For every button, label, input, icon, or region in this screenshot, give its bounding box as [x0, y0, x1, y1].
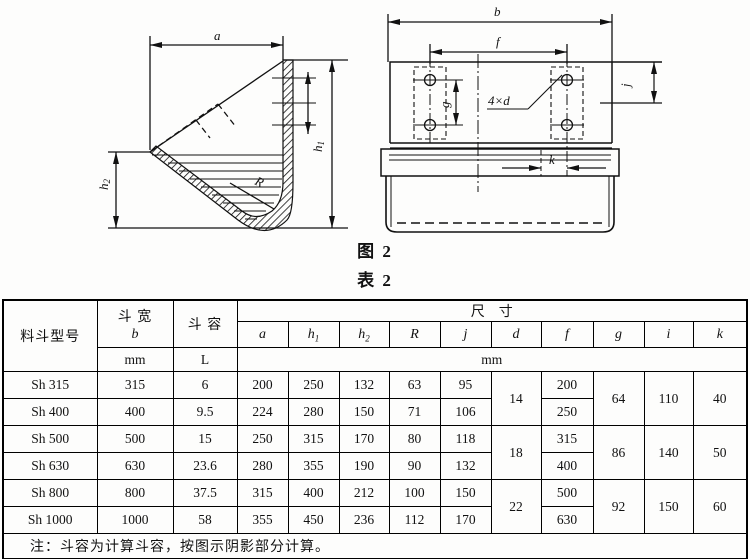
unit-width: mm	[97, 348, 173, 372]
table-row: Sh 500 500 15 250 315 170 80 118 18 315 …	[3, 426, 747, 453]
cell-f: 250	[541, 399, 593, 426]
cell-a: 250	[237, 426, 288, 453]
cell-k: 40	[693, 372, 747, 426]
dim-label-j: j	[618, 83, 633, 89]
header-sym-h1: h1	[288, 322, 339, 348]
cell-vol: 23.6	[173, 453, 237, 480]
header-sym-k: k	[693, 322, 747, 348]
cell-R: 100	[389, 480, 440, 507]
cell-h1: 450	[288, 507, 339, 534]
header-sym-i: i	[644, 322, 693, 348]
cell-a: 200	[237, 372, 288, 399]
cell-h1: 355	[288, 453, 339, 480]
cell-R: 112	[389, 507, 440, 534]
cell-j: 170	[440, 507, 491, 534]
cell-j: 132	[440, 453, 491, 480]
bucket-body	[386, 176, 614, 232]
cell-f: 200	[541, 372, 593, 399]
unit-volume: L	[173, 348, 237, 372]
left-view-drawing	[108, 36, 348, 231]
cell-h2: 150	[339, 399, 389, 426]
right-view-drawing	[381, 14, 662, 232]
header-sym-d: d	[491, 322, 541, 348]
cell-g: 86	[593, 426, 644, 480]
cell-h1: 400	[288, 480, 339, 507]
cell-g: 92	[593, 480, 644, 534]
cell-R: 71	[389, 399, 440, 426]
cell-j: 118	[440, 426, 491, 453]
hole-centermarks	[413, 54, 584, 192]
table-row: Sh 315 315 6 200 250 132 63 95 14 200 64…	[3, 372, 747, 399]
cell-i: 140	[644, 426, 693, 480]
cell-h1: 280	[288, 399, 339, 426]
cell-vol: 15	[173, 426, 237, 453]
cell-R: 90	[389, 453, 440, 480]
header-sym-h2: h2	[339, 322, 389, 348]
header-sym-R: R	[389, 322, 440, 348]
unit-dims: mm	[237, 348, 747, 372]
cell-d: 18	[491, 426, 541, 480]
cell-h2: 236	[339, 507, 389, 534]
cell-h1: 315	[288, 426, 339, 453]
cell-a: 280	[237, 453, 288, 480]
table-row: Sh 800 800 37.5 315 400 212 100 150 22 5…	[3, 480, 747, 507]
cell-model: Sh 400	[3, 399, 97, 426]
cell-k: 60	[693, 480, 747, 534]
cell-vol: 9.5	[173, 399, 237, 426]
cell-i: 150	[644, 480, 693, 534]
cell-a: 355	[237, 507, 288, 534]
cell-h2: 190	[339, 453, 389, 480]
table-caption: 表 2	[0, 266, 750, 291]
dim-label-h1: h1	[310, 141, 326, 152]
cell-f: 630	[541, 507, 593, 534]
cell-d: 22	[491, 480, 541, 534]
header-width: 斗 宽 b	[97, 300, 173, 348]
cell-vol: 58	[173, 507, 237, 534]
figure-caption: 图 2	[0, 237, 750, 262]
document-page: a h1 h2 R	[0, 0, 750, 559]
cell-a: 315	[237, 480, 288, 507]
cell-i: 110	[644, 372, 693, 426]
dim-label-f: f	[496, 34, 502, 49]
cell-R: 63	[389, 372, 440, 399]
cell-h2: 132	[339, 372, 389, 399]
cell-f: 400	[541, 453, 593, 480]
cell-j: 95	[440, 372, 491, 399]
cell-f: 500	[541, 480, 593, 507]
cell-model: Sh 315	[3, 372, 97, 399]
cell-model: Sh 500	[3, 426, 97, 453]
header-model: 料斗型号	[3, 300, 97, 372]
cell-h2: 170	[339, 426, 389, 453]
cell-a: 224	[237, 399, 288, 426]
dim-label-k: k	[549, 152, 555, 167]
header-sym-j: j	[440, 322, 491, 348]
cell-model: Sh 800	[3, 480, 97, 507]
dim-label-a: a	[214, 28, 221, 43]
rim-band	[381, 149, 619, 176]
header-dims: 尺寸	[237, 300, 747, 322]
cell-b: 1000	[97, 507, 173, 534]
cell-b: 315	[97, 372, 173, 399]
cell-k: 50	[693, 426, 747, 480]
dim-label-g: g	[437, 101, 452, 108]
cell-h1: 250	[288, 372, 339, 399]
bucket-wall-section	[150, 60, 293, 231]
cell-j: 106	[440, 399, 491, 426]
cell-R: 80	[389, 426, 440, 453]
cell-b: 800	[97, 480, 173, 507]
dim-b	[388, 14, 612, 62]
cell-model: Sh 1000	[3, 507, 97, 534]
dim-label-h2: h2	[96, 179, 112, 191]
header-sym-f: f	[541, 322, 593, 348]
cell-b: 630	[97, 453, 173, 480]
cell-g: 64	[593, 372, 644, 426]
spec-table: 料斗型号 斗 宽 b 斗 容 尺寸 a h1 h2 R j d f g i k …	[2, 299, 748, 559]
table-note: 注：斗容为计算斗容，按图示阴影部分计算。	[3, 534, 747, 559]
dim-label-b: b	[494, 4, 501, 19]
cell-b: 500	[97, 426, 173, 453]
cell-h2: 212	[339, 480, 389, 507]
hole-centerlines	[272, 78, 316, 125]
cell-d: 14	[491, 372, 541, 426]
header-volume: 斗 容	[173, 300, 237, 348]
cell-b: 400	[97, 399, 173, 426]
cell-vol: 37.5	[173, 480, 237, 507]
cell-j: 150	[440, 480, 491, 507]
cell-f: 315	[541, 426, 593, 453]
dim-a	[150, 36, 283, 150]
dashed-section-mark	[150, 104, 236, 152]
header-sym-a: a	[237, 322, 288, 348]
cell-model: Sh 630	[3, 453, 97, 480]
header-sym-g: g	[593, 322, 644, 348]
dim-j	[600, 62, 662, 103]
cell-vol: 6	[173, 372, 237, 399]
holes-count-label: 4×d	[488, 93, 510, 108]
